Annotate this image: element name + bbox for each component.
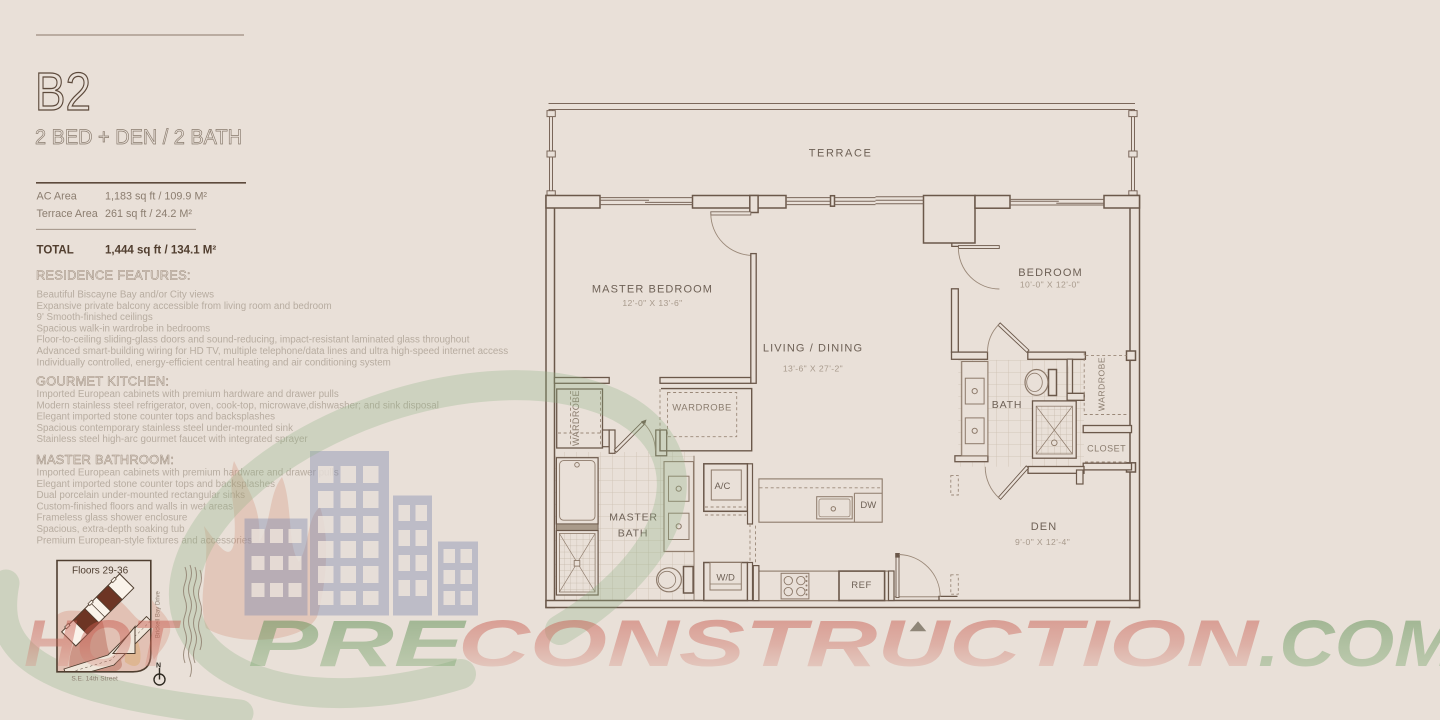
svg-text:Beautiful Biscayne Bay and/or: Beautiful Biscayne Bay and/or City views [37,290,215,301]
svg-text:9' Smooth-finished ceilings: 9' Smooth-finished ceilings [37,312,153,323]
svg-text:RESIDENCE FEATURES:: RESIDENCE FEATURES: [36,268,191,283]
svg-text:A/C: A/C [714,481,730,492]
svg-text:CONSTRUCTION: CONSTRUCTION [458,606,1260,680]
svg-text:AC Area: AC Area [37,191,77,203]
svg-text:Imported European cabinets wit: Imported European cabinets with premium … [37,389,339,400]
svg-text:Imported European cabinets wit: Imported European cabinets with premium … [37,468,339,479]
svg-text:10'-0" X 12'-0": 10'-0" X 12'-0" [1020,280,1080,290]
svg-text:Advanced smart-building wiring: Advanced smart-building wiring for HD TV… [37,346,509,357]
svg-text:BATH: BATH [992,399,1022,411]
svg-text:MASTER BEDROOM: MASTER BEDROOM [592,284,713,296]
svg-text:13'-6" X 27'-2": 13'-6" X 27'-2" [783,364,843,374]
svg-text:12'-0" X 13'-6": 12'-0" X 13'-6" [622,298,682,308]
svg-text:GOURMET KITCHEN:: GOURMET KITCHEN: [36,374,169,389]
svg-text:261 sq ft / 24.2 M²: 261 sq ft / 24.2 M² [105,208,192,220]
svg-text:W/D: W/D [716,573,735,584]
svg-text:TOTAL: TOTAL [37,245,74,257]
svg-text:.COM: .COM [1258,606,1440,680]
svg-text:PRE: PRE [248,606,467,680]
svg-text:Stainless steel high-arc gourm: Stainless steel high-arc gourmet faucet … [37,434,309,445]
svg-text:WARDROBE: WARDROBE [1097,357,1107,411]
svg-text:9'-0" X 12'-4": 9'-0" X 12'-4" [1015,537,1070,547]
svg-text:1,444 sq ft / 134.1 M²: 1,444 sq ft / 134.1 M² [105,245,216,257]
svg-text:CLOSET: CLOSET [1087,444,1126,454]
svg-text:1,183 sq ft / 109.9 M²: 1,183 sq ft / 109.9 M² [105,191,207,203]
svg-text:2 BED + DEN / 2 BATH: 2 BED + DEN / 2 BATH [35,126,242,149]
svg-text:Terrace Area: Terrace Area [37,208,98,220]
svg-text:REF: REF [851,580,872,591]
svg-text:WARDROBE: WARDROBE [672,403,732,414]
svg-text:MASTER BATHROOM:: MASTER BATHROOM: [36,452,174,467]
svg-text:Frameless glass shower enclosu: Frameless glass shower enclosure [37,513,188,524]
svg-text:Floor-to-ceiling sliding-glass: Floor-to-ceiling sliding-glass doors and… [37,335,470,346]
svg-text:Floors 29-36: Floors 29-36 [72,566,129,577]
svg-text:Spacious walk-in wardrobe in b: Spacious walk-in wardrobe in bedrooms [37,323,211,334]
svg-text:HOT: HOT [24,606,181,680]
svg-text:Individually controlled, energ: Individually controlled, energy-efficien… [37,357,391,368]
svg-text:BEDROOM: BEDROOM [1018,267,1083,279]
svg-text:Spacious, extra-depth soaking: Spacious, extra-depth soaking tub [37,524,186,535]
svg-text:DW: DW [860,500,876,511]
svg-text:B2: B2 [35,62,91,122]
svg-text:Elegant imported stone counter: Elegant imported stone counter tops and … [37,412,276,423]
svg-text:Expansive private balcony acce: Expansive private balcony accessible fro… [37,301,332,312]
svg-text:DEN: DEN [1031,521,1058,533]
svg-text:LIVING / DINING: LIVING / DINING [763,343,863,355]
svg-text:Premium European-style fixture: Premium European-style fixtures and acce… [37,535,253,546]
svg-text:TERRACE: TERRACE [809,148,873,160]
svg-text:Spacious contemporary stainles: Spacious contemporary stainless steel un… [37,423,294,434]
